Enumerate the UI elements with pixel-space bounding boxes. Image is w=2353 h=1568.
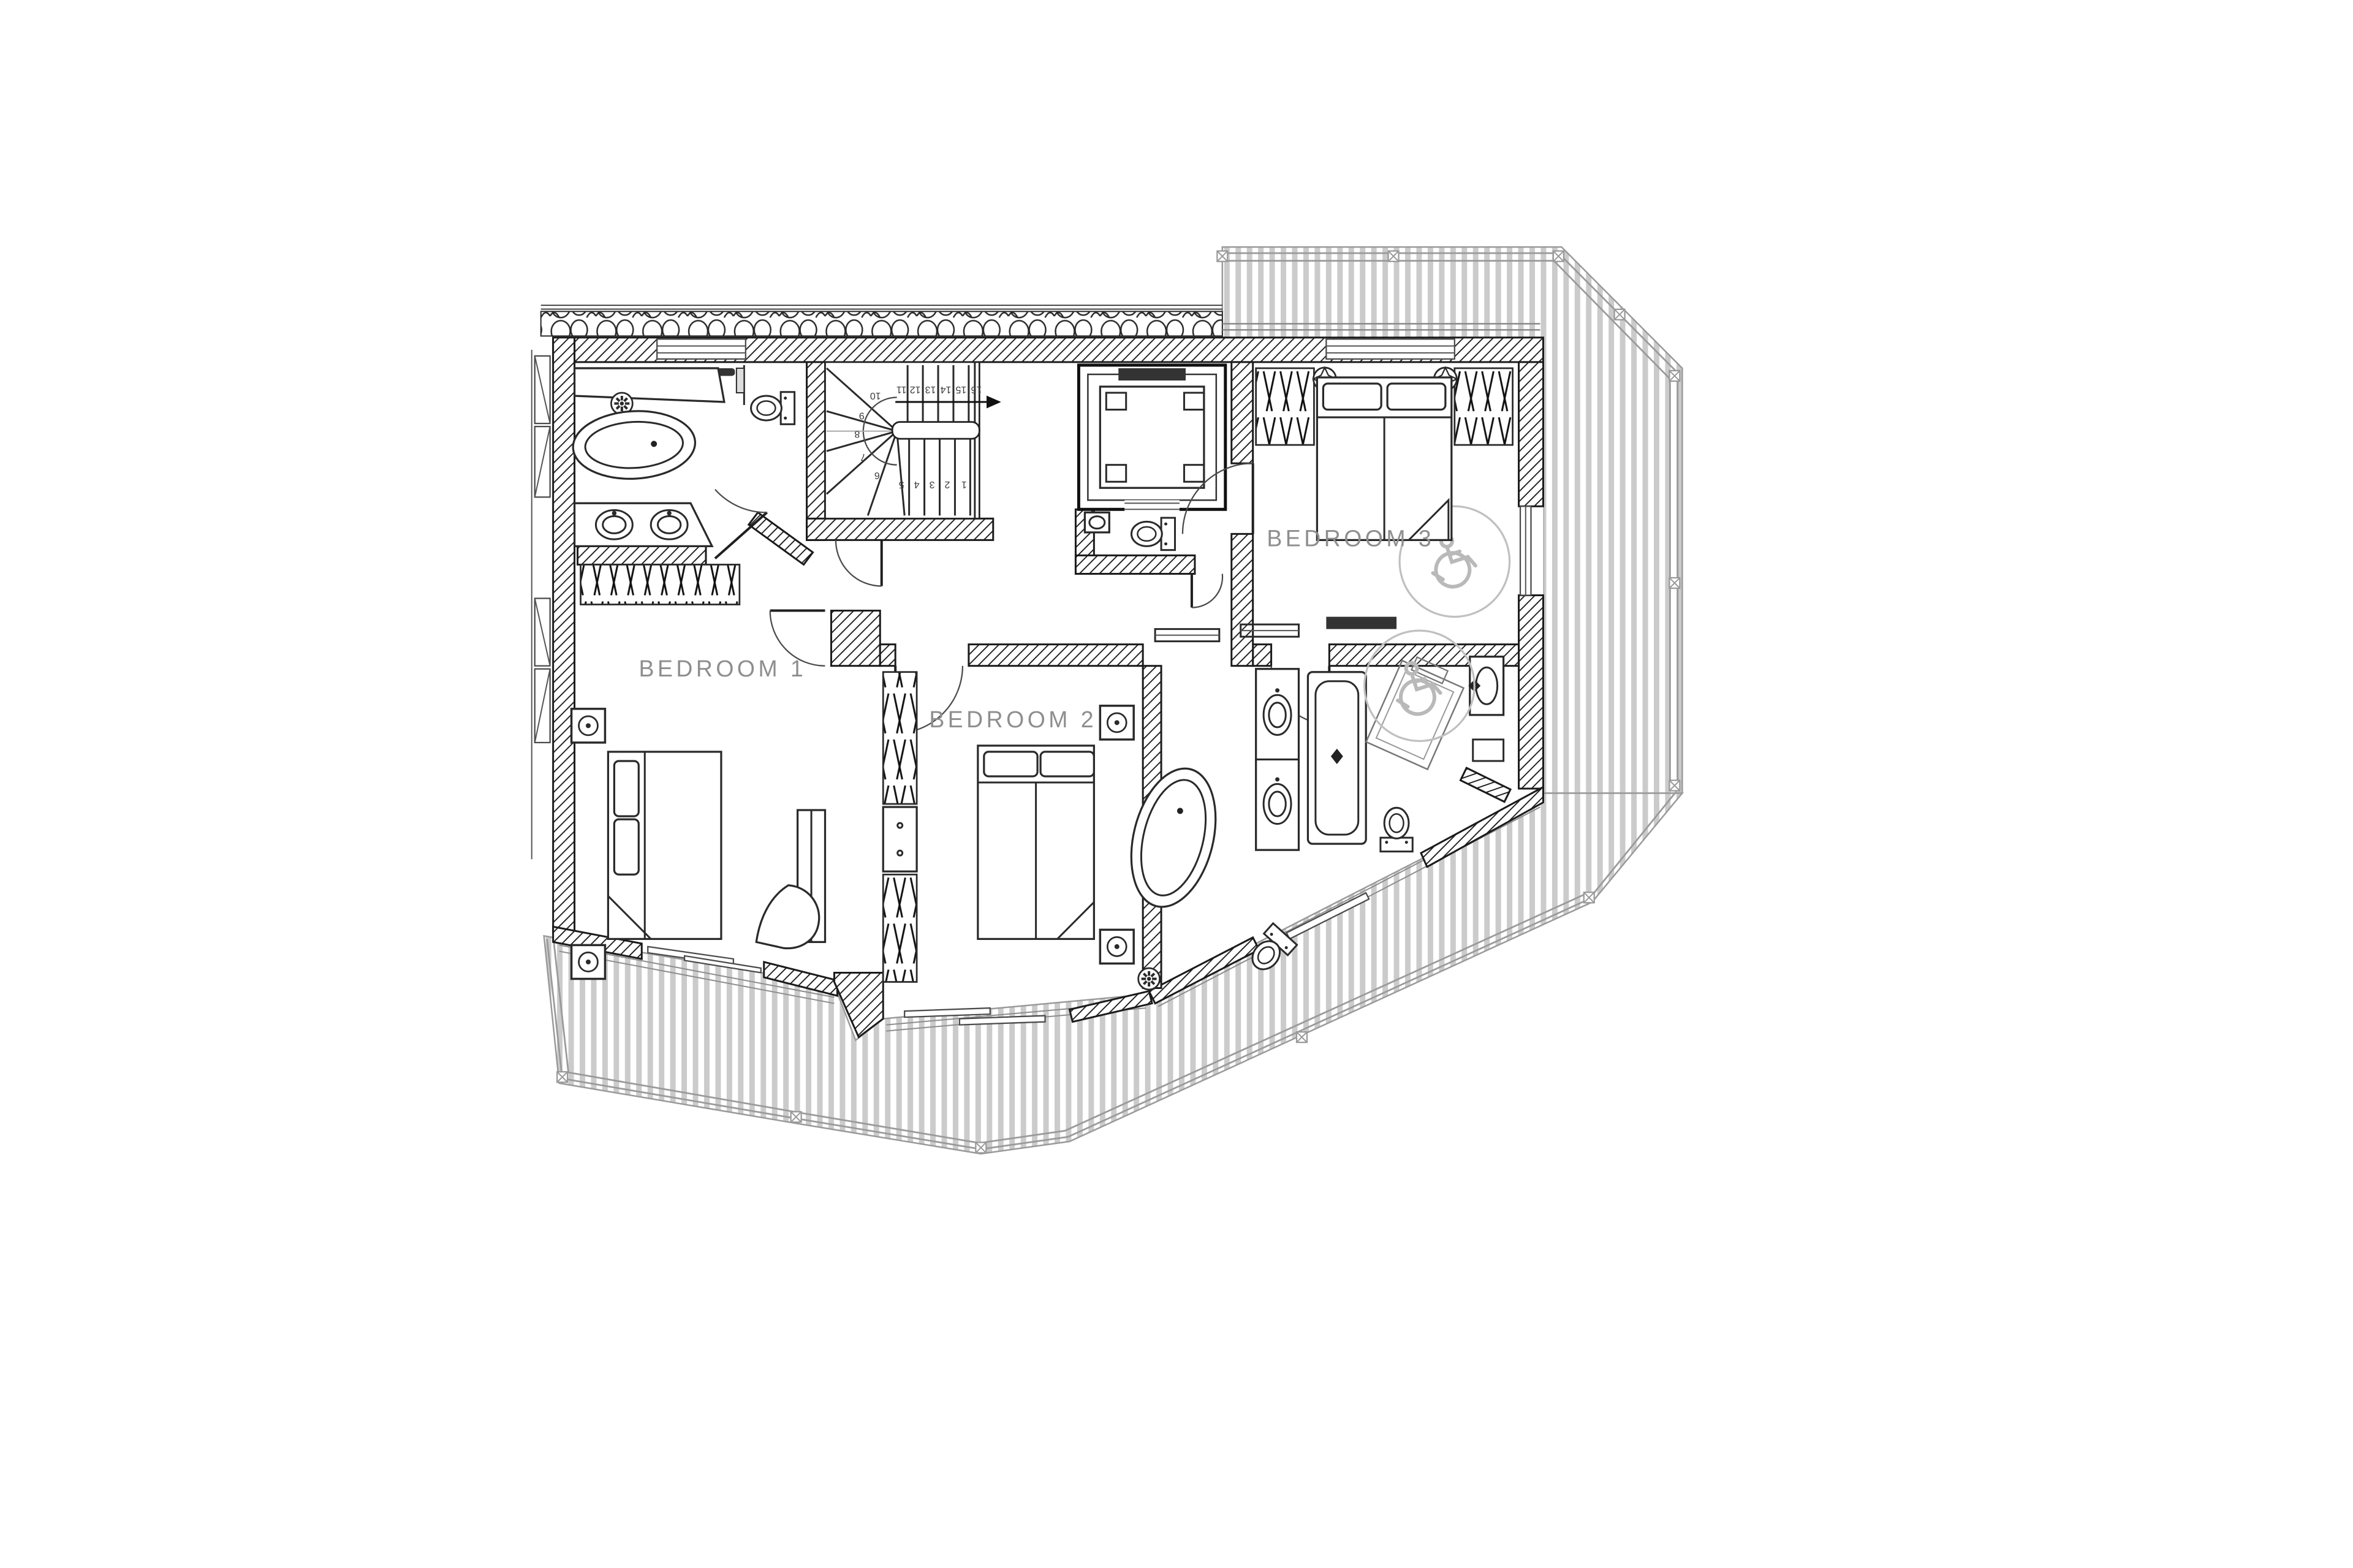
bed-double-icon [1317,377,1451,540]
stair-number: 5 [899,479,904,490]
console-shelf [1326,617,1396,629]
stair-number: 4 [914,479,920,490]
counter [575,368,724,402]
railing-post-icon [976,1142,986,1153]
stair-number: 7 [860,452,866,462]
stair-number: 2 [944,479,950,490]
stair-number: 10 [870,390,881,401]
window-north [1326,339,1454,359]
nightstand-icon [572,945,605,979]
nightstand-icon [1100,706,1134,740]
railing-post-icon [1669,371,1680,381]
railing-post-icon [1553,251,1564,262]
wardrobe-icon [581,564,740,604]
room-label: BEDROOM 3 [1267,525,1434,551]
bathtub-rect-icon [1308,672,1366,844]
wardrobe-icon [1455,368,1513,445]
stair-number: 8 [854,429,860,439]
stair-number: 6 [874,470,880,480]
wardrobe-icon [1256,368,1314,445]
stair-number: 3 [929,479,934,490]
lift-shaft [1078,365,1225,512]
stair-number: 15 [955,384,966,395]
stair-number: 11 [896,384,907,395]
railing-post-icon [1217,251,1227,262]
railing-post-icon [1297,1032,1307,1042]
stair-number: 12 [910,384,921,395]
railing-post-icon [1584,892,1594,903]
wardrobe-icon [883,672,917,804]
nightstand-icon [1100,930,1134,963]
stair-number: 9 [859,411,865,421]
dresser-icon [883,807,917,871]
railing-post-icon [1389,251,1399,262]
bed-double-icon [978,746,1094,939]
nightstand-icon [572,709,605,743]
stair-handrail-spine [892,422,979,439]
railing-post-icon [1669,780,1680,790]
room-label: BEDROOM 1 [639,656,807,681]
floor-drain-icon [1139,968,1160,990]
stair-number: 14 [941,384,952,395]
railing-post-icon [557,1072,567,1082]
railing-post-icon [791,1112,801,1122]
floor-plan: 1 2 3 4 5 6 7 8 9 10 11 12 13 14 15 16 [0,0,2353,1568]
room-label: BEDROOM 2 [929,706,1097,732]
bed-double-icon [608,752,721,939]
stair-number: 13 [925,384,936,395]
railing-post-icon [1669,578,1680,588]
window-north [657,339,746,359]
stair-number: 16 [971,384,982,395]
stair-number: 1 [961,479,967,490]
railing-post-icon [1615,309,1625,320]
wardrobe-icon [883,874,917,982]
